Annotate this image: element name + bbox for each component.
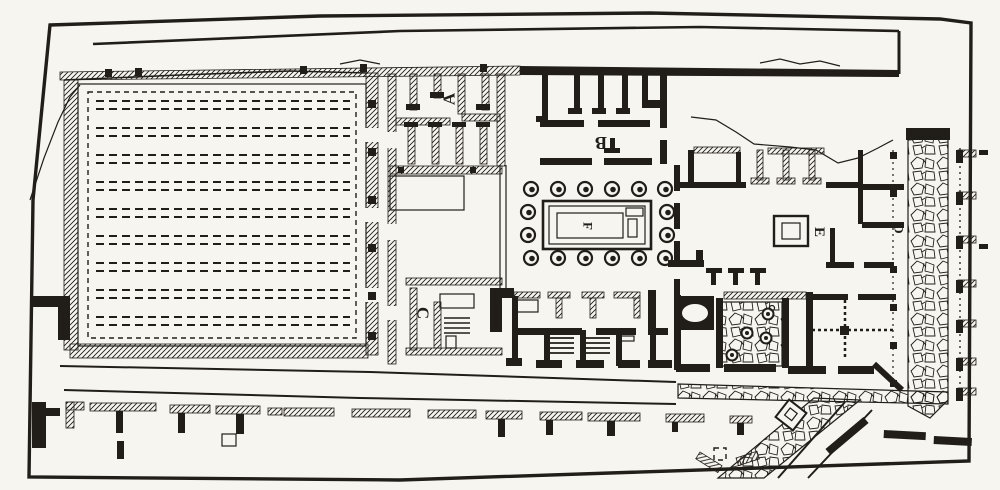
colonnade-stub [956, 358, 976, 371]
plan-engraving: A C B [0, 0, 1000, 490]
east-house: E D [668, 117, 907, 390]
kitchen [716, 298, 789, 368]
colonnade-stub [956, 320, 976, 333]
engraving-page: A C B [0, 0, 1000, 490]
garden-south-wall [70, 344, 368, 358]
garden-plot [30, 71, 380, 358]
lane-label-d: D [892, 224, 907, 233]
central-basin: F [543, 201, 651, 249]
garden-planting-rows [96, 101, 350, 325]
insula-north-wall [60, 59, 899, 80]
colonnade-stub [956, 236, 976, 249]
colonnade-stub [956, 280, 976, 293]
basin-label-f: F [581, 222, 596, 230]
stairs-glyph [550, 338, 574, 353]
colonnade-stub [956, 150, 976, 163]
left-wall-stub [32, 296, 70, 307]
north-rooms-b: B [536, 72, 669, 165]
room-label-a: A [440, 92, 459, 105]
colonnade-stub [956, 192, 976, 205]
peristyle-court: F [521, 165, 680, 297]
room-label-e: E [811, 227, 827, 237]
altar-base [774, 216, 808, 246]
left-wall-stub [32, 402, 46, 448]
south-shops [506, 290, 672, 368]
oval-basin [676, 296, 714, 330]
colonnade-stub [956, 388, 976, 401]
room-label-c: C [414, 307, 433, 319]
rubble-lane-vertical [908, 136, 948, 418]
room-label-b: B [595, 133, 607, 153]
portico-piers [66, 402, 752, 459]
west-house: A C [386, 74, 514, 364]
right-street-colonnade [956, 148, 988, 401]
stairs-glyph [444, 318, 470, 333]
stairs-glyph [586, 338, 610, 353]
